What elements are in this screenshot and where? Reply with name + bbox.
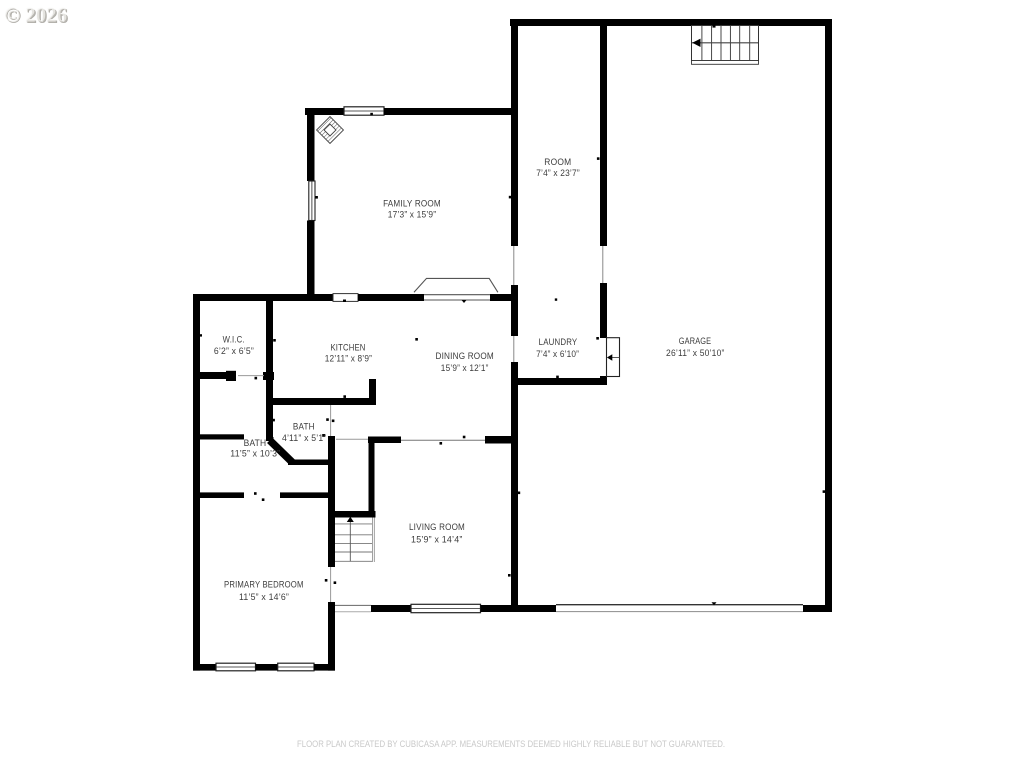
- svg-text:17’3” x 15’9”: 17’3” x 15’9”: [388, 209, 436, 219]
- svg-text:PRIMARY BEDROOM: PRIMARY BEDROOM: [224, 580, 304, 590]
- svg-text:W.I.C.: W.I.C.: [223, 334, 245, 344]
- svg-text:15’9” x 14’4”: 15’9” x 14’4”: [411, 535, 463, 545]
- svg-text:7’4” x 6’10”: 7’4” x 6’10”: [536, 349, 579, 359]
- svg-text:26’11” x 50’10”: 26’11” x 50’10”: [666, 348, 725, 358]
- svg-text:15’9” x 12’1”: 15’9” x 12’1”: [441, 363, 489, 373]
- svg-text:DINING ROOM: DINING ROOM: [436, 351, 494, 361]
- svg-text:12’11” x 8’9”: 12’11” x 8’9”: [325, 353, 372, 363]
- svg-text:© 2026: © 2026: [5, 3, 68, 27]
- svg-text:FLOOR PLAN CREATED BY CUBICASA: FLOOR PLAN CREATED BY CUBICASA APP. MEAS…: [297, 739, 725, 750]
- svg-text:ROOM: ROOM: [544, 157, 571, 167]
- svg-text:4’11” x 5’1”: 4’11” x 5’1”: [282, 433, 327, 443]
- svg-text:FAMILY ROOM: FAMILY ROOM: [383, 198, 441, 208]
- svg-text:BATH: BATH: [244, 438, 267, 448]
- svg-text:6’2” x 6’5”: 6’2” x 6’5”: [214, 346, 254, 356]
- svg-text:BATH: BATH: [293, 421, 315, 431]
- svg-text:7’4” x 23’7”: 7’4” x 23’7”: [536, 168, 580, 178]
- svg-text:GARAGE: GARAGE: [679, 336, 712, 346]
- svg-text:11’5” x 14’6”: 11’5” x 14’6”: [239, 592, 289, 602]
- svg-text:11’5” x 10’3”: 11’5” x 10’3”: [230, 449, 280, 459]
- svg-text:KITCHEN: KITCHEN: [330, 342, 365, 352]
- svg-text:LAUNDRY: LAUNDRY: [539, 337, 578, 347]
- svg-text:LIVING ROOM: LIVING ROOM: [409, 522, 465, 532]
